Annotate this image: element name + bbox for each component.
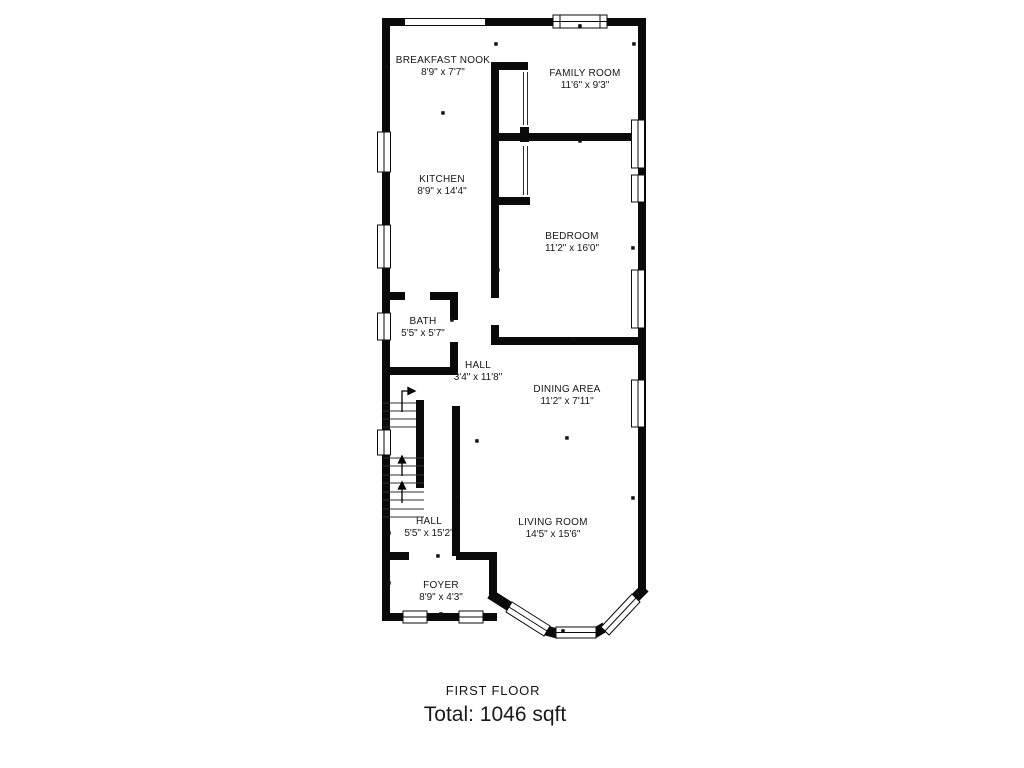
room-name: HALL — [404, 516, 453, 528]
window-left-kitchen-upper — [378, 132, 391, 172]
window-right-bedroom-upper-b — [632, 175, 645, 202]
window-right-dining — [632, 380, 645, 427]
room-dims: 5'5" x 5'7" — [401, 328, 445, 340]
room-label-dining-area: DINING AREA 11'2" x 7'11" — [533, 384, 600, 408]
room-label-hall-upper: HALL 3'4" x 11'8" — [454, 360, 503, 384]
room-name: HALL — [454, 360, 503, 372]
room-label-breakfast-nook: BREAKFAST NOOK 8'9" x 7'7" — [396, 55, 490, 79]
room-name: FOYER — [419, 580, 463, 592]
wall-bath-right-upper — [450, 292, 458, 320]
stair-direction-arrows — [399, 388, 416, 504]
room-name: LIVING ROOM — [518, 517, 587, 529]
wall-familyroom-bedroom — [497, 133, 646, 141]
window-left-kitchen-lower — [378, 225, 391, 268]
wall-bedroom-door-post — [491, 325, 499, 339]
room-label-family-room: FAMILY ROOM 11'6" x 9'3" — [549, 68, 620, 92]
room-dims: 3'4" x 11'8" — [454, 372, 503, 384]
window-left-stair-hall — [378, 430, 391, 455]
window-left-bath — [378, 313, 391, 340]
room-label-foyer: FOYER 8'9" x 4'3" — [419, 580, 463, 604]
bay-window-left — [506, 602, 550, 636]
wall-bath-bottom — [382, 367, 458, 375]
floorplan-page: BREAKFAST NOOK 8'9" x 7'7" FAMILY ROOM 1… — [0, 0, 1024, 768]
window-right-bedroom-lower — [632, 270, 645, 328]
room-name: BATH — [401, 316, 445, 328]
room-name: FAMILY ROOM — [549, 68, 620, 80]
room-name: KITCHEN — [417, 174, 466, 186]
bay-window-right — [601, 594, 640, 635]
wall-bath-top-left — [382, 292, 405, 300]
floor-title: FIRST FLOOR — [446, 683, 541, 698]
wall-closet-bottom — [491, 197, 530, 205]
room-name: DINING AREA — [533, 384, 600, 396]
room-dims: 11'2" x 16'0" — [545, 243, 599, 255]
floorplan-drawing — [0, 0, 1024, 768]
room-label-kitchen: KITCHEN 8'9" x 14'4" — [417, 174, 466, 198]
room-dims: 5'5" x 15'2" — [404, 528, 453, 540]
window-foyer-right — [459, 611, 483, 623]
wall-foyer-top-left — [382, 552, 409, 560]
window-foyer-left — [403, 611, 427, 623]
room-label-hall-lower: HALL 5'5" x 15'2" — [404, 516, 453, 540]
room-label-bath: BATH 5'5" x 5'7" — [401, 316, 445, 340]
room-dims: 11'6" x 9'3" — [549, 80, 620, 92]
room-name: BEDROOM — [545, 231, 599, 243]
total-sqft-title: Total: 1046 sqft — [424, 703, 566, 727]
window-right-bedroom-upper-a — [632, 120, 645, 168]
wall-bedroom-dining — [491, 337, 646, 345]
room-label-living-room: LIVING ROOM 14'5" x 15'6" — [518, 517, 587, 541]
room-dims: 11'2" x 7'11" — [533, 396, 600, 408]
room-dims: 8'9" x 4'3" — [419, 592, 463, 604]
room-label-bedroom: BEDROOM 11'2" x 16'0" — [545, 231, 599, 255]
room-dims: 8'9" x 14'4" — [417, 186, 466, 198]
wall-kitchen-east — [491, 62, 499, 298]
room-dims: 14'5" x 15'6" — [518, 529, 587, 541]
room-dims: 8'9" x 7'7" — [396, 67, 490, 79]
room-name: BREAKFAST NOOK — [396, 55, 490, 67]
